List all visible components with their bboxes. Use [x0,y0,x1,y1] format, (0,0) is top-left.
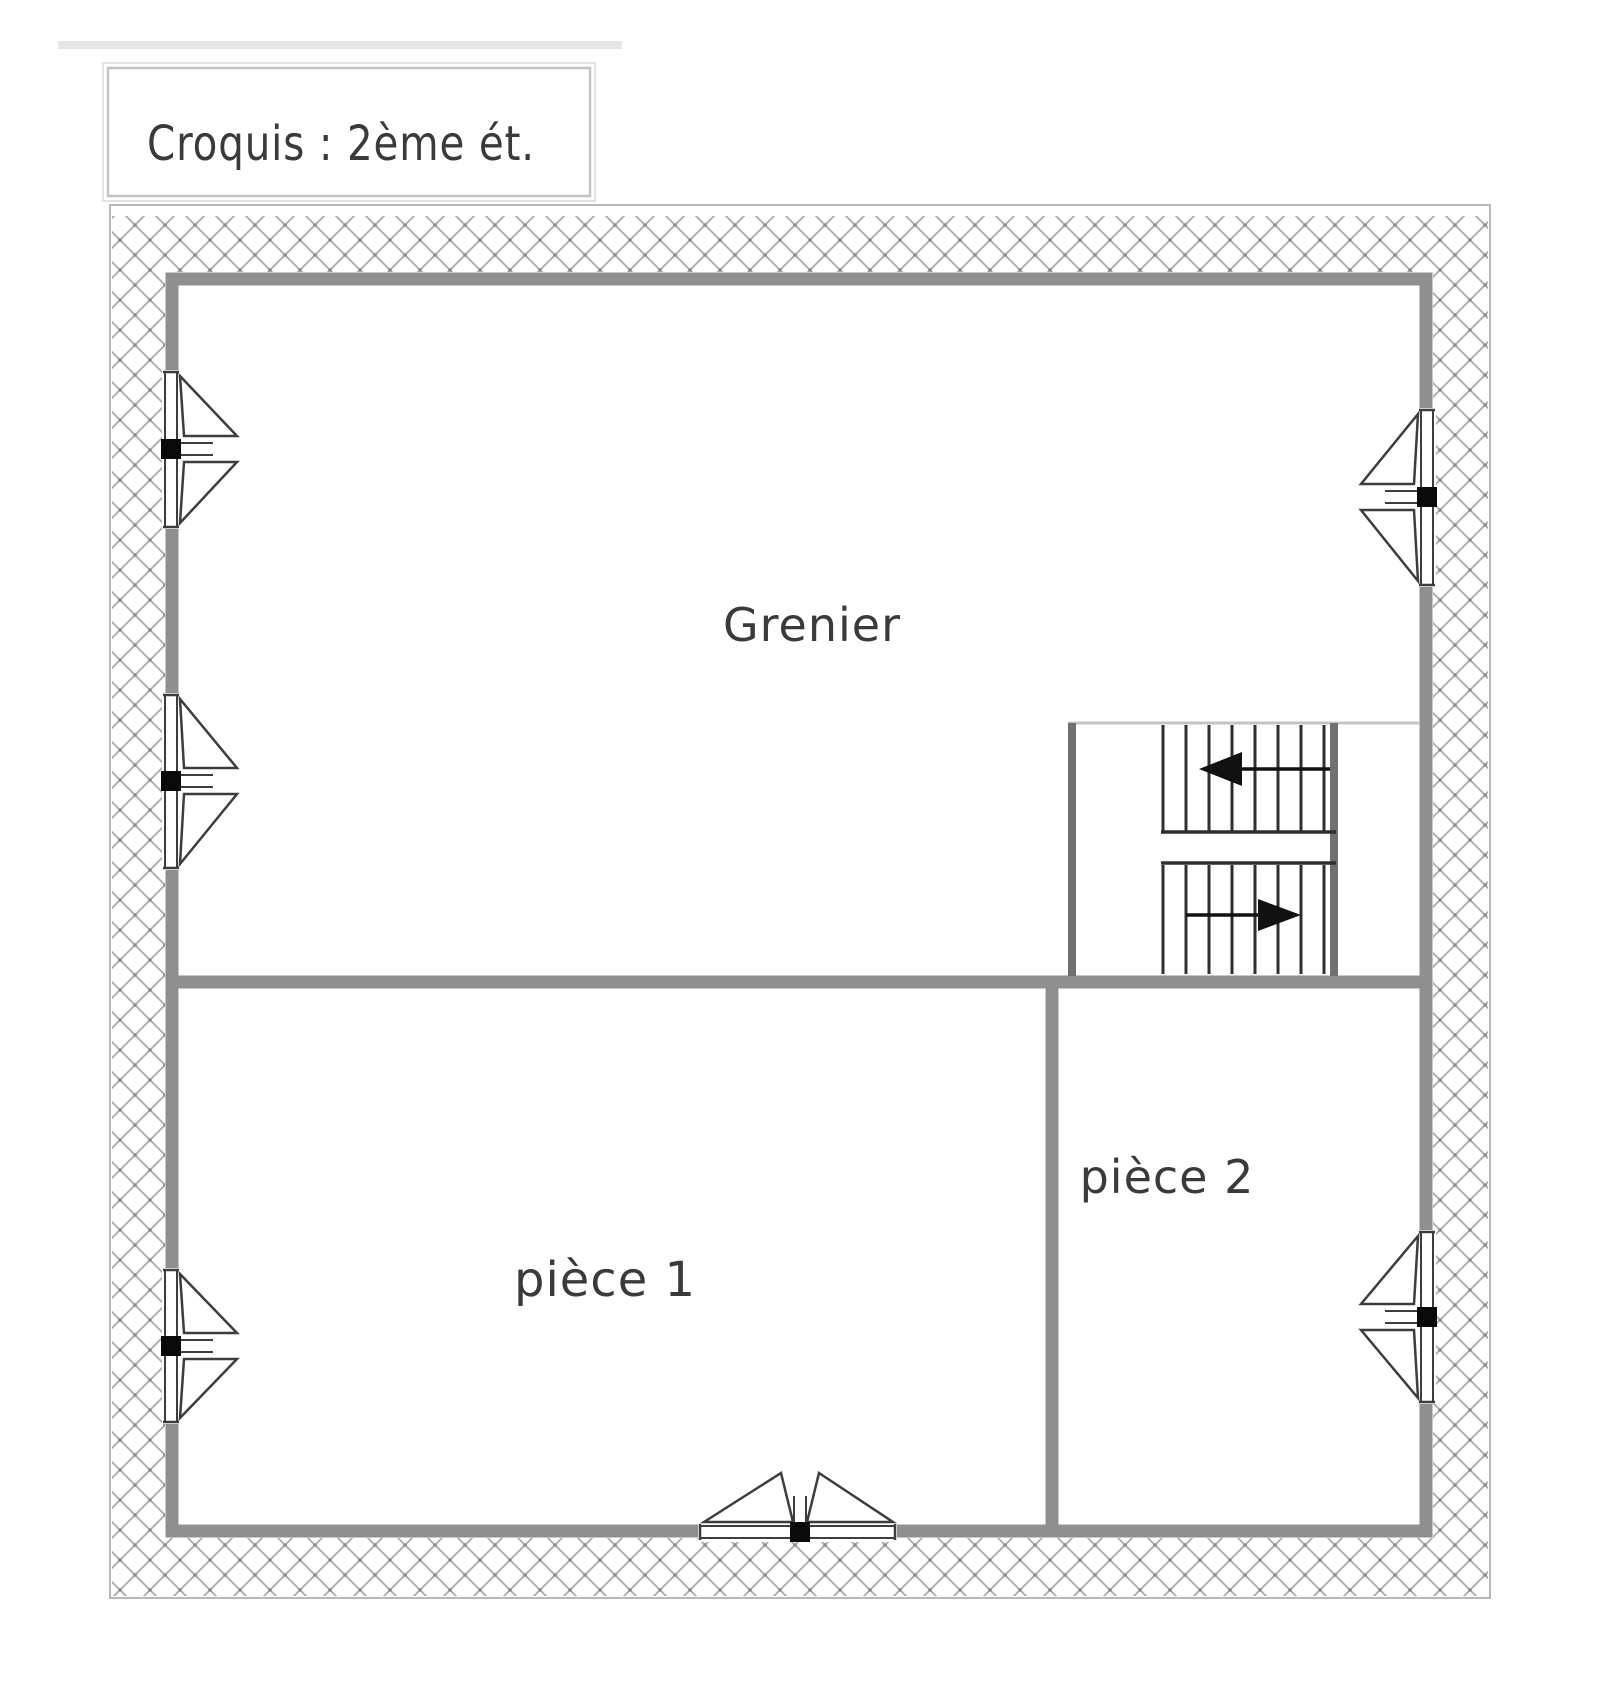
room-label-piece-2: pièce 2 [1080,1150,1255,1204]
title-label: Croquis : 2ème ét. [147,116,535,172]
room-label-grenier: Grenier [723,598,901,652]
plan-outer-border [110,205,1490,1598]
floor-plan-canvas: Croquis : 2ème ét. [0,0,1600,1682]
room-label-piece-1: pièce 1 [514,1252,696,1308]
title-box: Croquis : 2ème ét. [103,63,595,201]
floor-plan-page: Croquis : 2ème ét. [0,0,1600,1682]
